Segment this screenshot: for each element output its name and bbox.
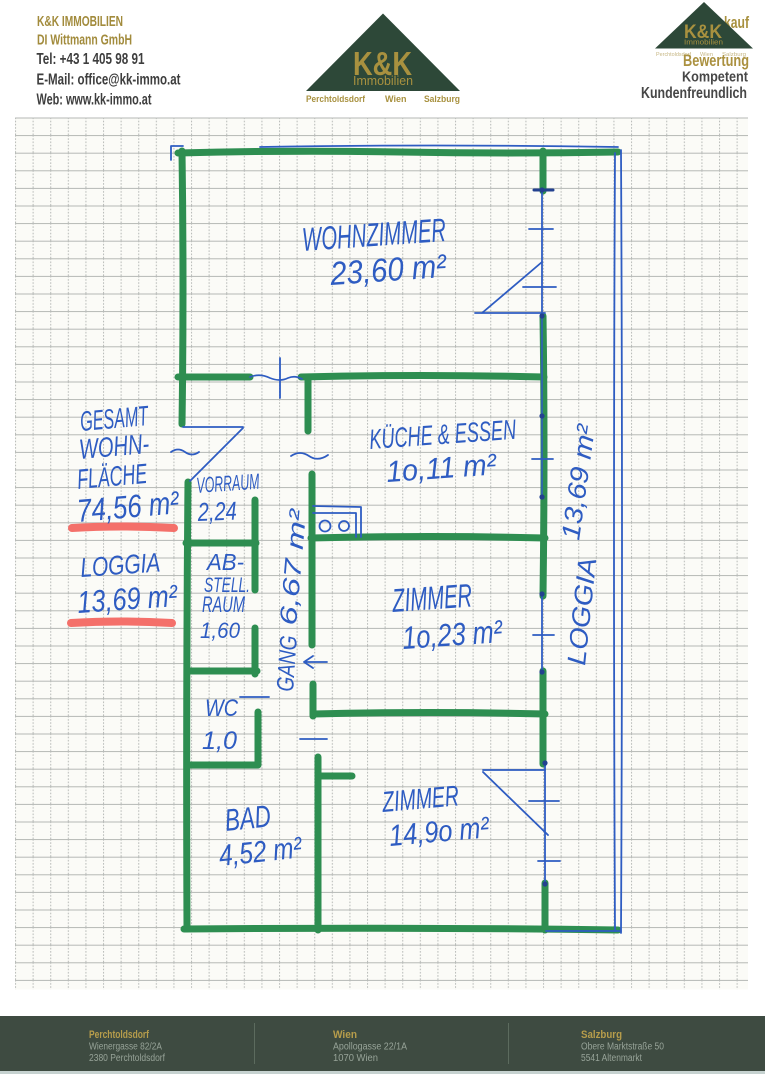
svg-text:Wienergasse 82/2A: Wienergasse 82/2A bbox=[89, 1042, 162, 1053]
svg-text:GANG: GANG bbox=[272, 635, 303, 693]
svg-text:1070 Wien: 1070 Wien bbox=[333, 1053, 378, 1064]
svg-text:5541 Altenmarkt: 5541 Altenmarkt bbox=[581, 1053, 642, 1064]
svg-text:2,24: 2,24 bbox=[196, 496, 237, 527]
svg-text:ZIMMER: ZIMMER bbox=[390, 576, 473, 619]
svg-text:Tel: +43 1 405 98 91: Tel: +43 1 405 98 91 bbox=[37, 51, 145, 68]
svg-text:Kundenfreundlich: Kundenfreundlich bbox=[641, 85, 747, 102]
svg-text:Salzburg: Salzburg bbox=[581, 1029, 622, 1041]
svg-text:2380 Perchtoldsdorf: 2380 Perchtoldsdorf bbox=[89, 1053, 165, 1064]
svg-text:1o,23 m²: 1o,23 m² bbox=[401, 613, 504, 656]
svg-text:1,0: 1,0 bbox=[202, 727, 237, 755]
svg-text:DI Wittmann GmbH: DI Wittmann GmbH bbox=[37, 33, 132, 49]
svg-text:1,60: 1,60 bbox=[200, 618, 241, 643]
svg-text:E-Mail: office@kk-immo.at: E-Mail: office@kk-immo.at bbox=[37, 72, 181, 89]
svg-text:K&K IMMOBILIEN: K&K IMMOBILIEN bbox=[37, 14, 123, 30]
svg-text:LOGGIA: LOGGIA bbox=[79, 547, 161, 583]
svg-text:13,69 m²: 13,69 m² bbox=[76, 578, 180, 620]
svg-text:Wien: Wien bbox=[385, 94, 407, 105]
svg-text:AB-: AB- bbox=[205, 549, 244, 575]
svg-text:Immobilien: Immobilien bbox=[684, 38, 723, 47]
svg-text:VORRAUM: VORRAUM bbox=[196, 469, 261, 498]
svg-text:Apollogasse 22/1A: Apollogasse 22/1A bbox=[333, 1042, 407, 1053]
svg-text:RAUM: RAUM bbox=[202, 592, 245, 617]
svg-text:ZIMMER: ZIMMER bbox=[380, 780, 460, 819]
svg-text:Salzburg: Salzburg bbox=[424, 94, 460, 105]
svg-text:Wien: Wien bbox=[333, 1029, 357, 1041]
svg-text:Immobilien: Immobilien bbox=[353, 74, 413, 88]
svg-text:WC: WC bbox=[205, 695, 239, 722]
svg-text:Kompetent: Kompetent bbox=[682, 70, 748, 86]
svg-text:Perchtoldsdorf: Perchtoldsdorf bbox=[89, 1029, 149, 1041]
svg-text:Perchtoldsdorf: Perchtoldsdorf bbox=[306, 94, 366, 105]
svg-text:Obere Marktstraße 50: Obere Marktstraße 50 bbox=[581, 1042, 664, 1053]
svg-text:Bewertung: Bewertung bbox=[683, 51, 749, 70]
svg-text:Web: www.kk-immo.at: Web: www.kk-immo.at bbox=[37, 92, 152, 109]
svg-text:BAD: BAD bbox=[223, 798, 272, 838]
